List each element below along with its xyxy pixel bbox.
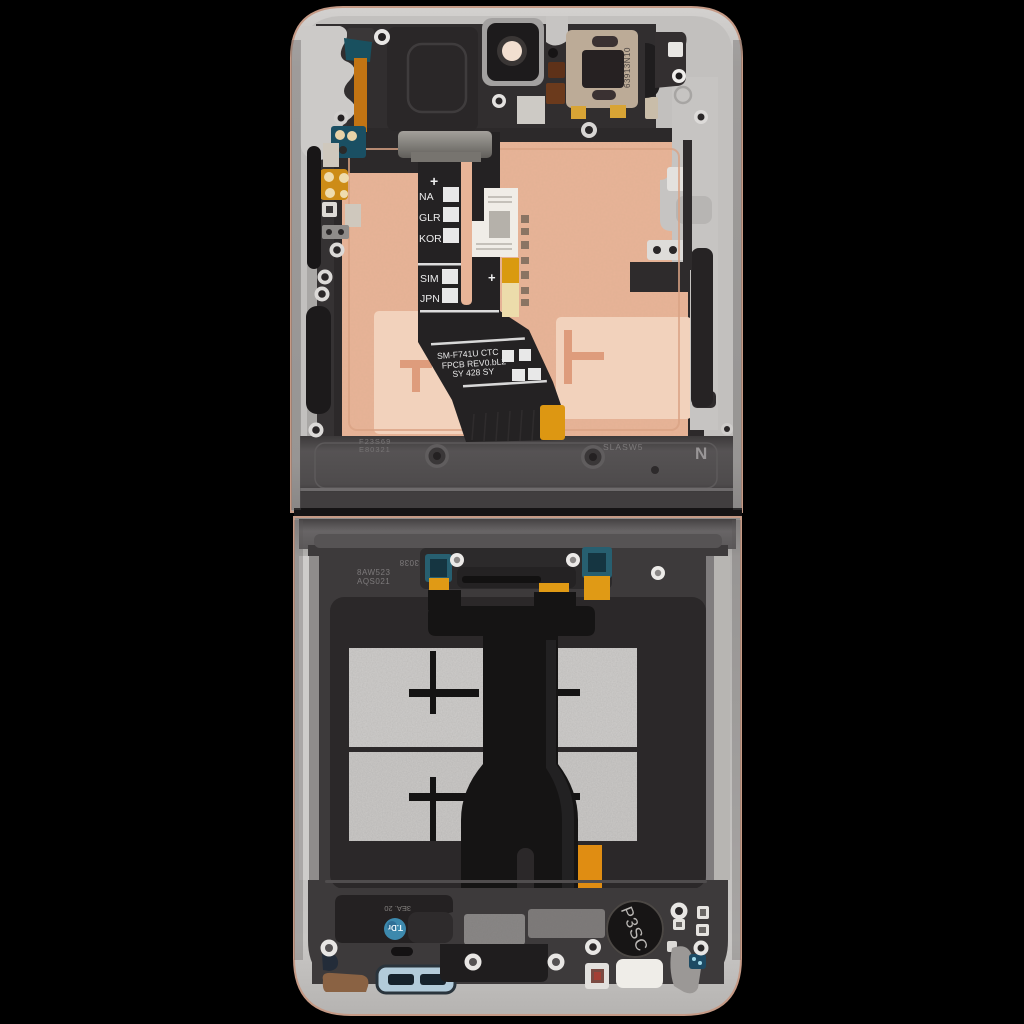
svg-text:T.Dr: T.Dr	[388, 923, 403, 932]
svg-text:+: +	[488, 270, 496, 285]
svg-text:GLR: GLR	[419, 212, 441, 224]
svg-text:SIM: SIM	[420, 273, 439, 285]
svg-text:AQS021: AQS021	[357, 577, 390, 586]
svg-text:SLASW5: SLASW5	[603, 442, 644, 452]
svg-text:8AW523: 8AW523	[357, 568, 390, 577]
svg-text:+: +	[430, 173, 438, 189]
svg-text:63913N10: 63913N10	[623, 47, 632, 88]
svg-text:JPN: JPN	[420, 293, 440, 305]
svg-text:E80321: E80321	[359, 445, 391, 454]
svg-text:3EA. 20: 3EA. 20	[384, 904, 411, 913]
svg-text:KOR: KOR	[419, 233, 442, 245]
svg-text:NA: NA	[419, 191, 434, 203]
svg-text:3038: 3038	[399, 558, 419, 567]
svg-text:N: N	[695, 444, 707, 463]
